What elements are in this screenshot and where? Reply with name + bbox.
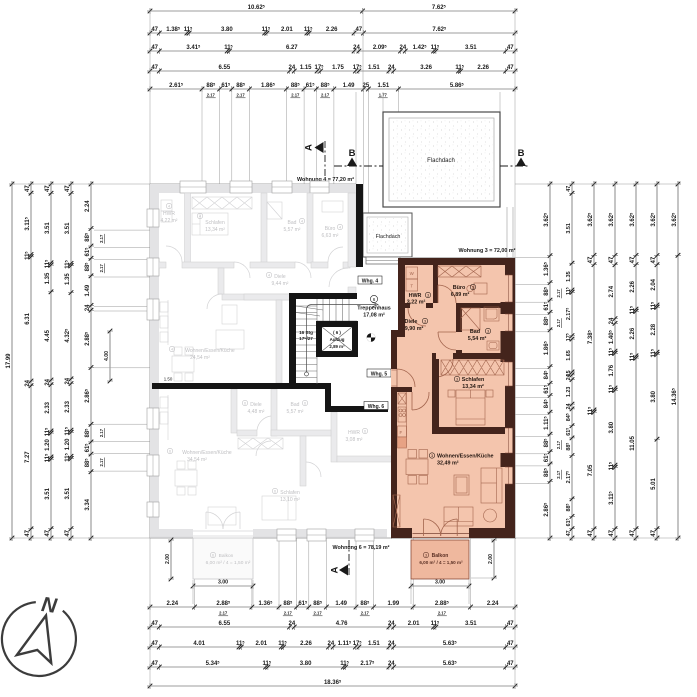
svg-text:2.885: 2.885 [216,600,230,607]
svg-text:3.51: 3.51 [65,487,71,499]
svg-text:Schlafen: Schlafen [280,490,300,496]
svg-text:47: 47 [65,185,71,192]
svg-text:1.405: 1.405 [608,330,615,344]
svg-text:47: 47 [151,27,158,33]
svg-text:3.625: 3.625 [587,213,594,227]
svg-text:3: 3 [431,454,433,458]
svg-text:2.17: 2.17 [99,264,104,273]
svg-text:Wohnen/Essen/Küche: Wohnen/Essen/Küche [185,348,235,354]
svg-text:4: 4 [171,347,173,351]
svg-text:3.80: 3.80 [221,27,233,33]
svg-text:1.51: 1.51 [368,65,380,71]
svg-text:3,08 m²: 3,08 m² [346,437,363,443]
svg-text:Diele: Diele [274,274,286,280]
svg-text:1.23: 1.23 [566,387,572,398]
svg-text:24,54 m²: 24,54 m² [190,355,210,361]
svg-text:47: 47 [588,256,594,263]
svg-text:3.625: 3.625 [543,213,550,227]
svg-text:47: 47 [507,641,514,647]
svg-text:1.49: 1.49 [343,83,355,89]
svg-text:9,90 m²: 9,90 m² [405,326,424,332]
svg-text:47: 47 [588,529,594,536]
svg-text:6.55: 6.55 [219,65,231,71]
svg-text:Diele: Diele [250,402,262,408]
svg-text:47: 47 [151,641,158,647]
svg-text:2.04: 2.04 [651,278,657,290]
svg-text:HWR: HWR [409,293,422,299]
svg-text:2.17: 2.17 [314,611,323,616]
svg-text:2.24: 2.24 [85,200,91,212]
svg-text:1.75: 1.75 [332,65,344,71]
svg-text:3.51: 3.51 [566,223,572,234]
svg-text:F: F [400,430,403,435]
svg-text:2,89 m²: 2,89 m² [329,344,345,349]
svg-text:3.51: 3.51 [45,222,51,234]
svg-text:4,22 m²: 4,22 m² [161,218,178,224]
svg-text:Flachdach: Flachdach [427,158,455,164]
svg-text:2.01: 2.01 [255,641,267,647]
svg-text:7.05: 7.05 [588,464,594,476]
svg-text:47: 47 [507,65,514,71]
svg-text:6: 6 [364,429,366,433]
svg-text:1.51: 1.51 [368,641,380,647]
svg-text:6,63 m²: 6,63 m² [322,233,339,239]
svg-text:1.385: 1.385 [166,26,180,33]
svg-text:24: 24 [566,404,572,410]
svg-text:B: B [518,148,525,159]
svg-text:Bad: Bad [291,402,300,408]
svg-text:2.885: 2.885 [435,600,449,607]
svg-text:2.26: 2.26 [300,641,312,647]
svg-text:Wohnen/Essen/Küche: Wohnen/Essen/Küche [182,450,232,456]
svg-text:3.415: 3.415 [186,44,200,51]
svg-text:2.17: 2.17 [556,289,561,298]
svg-text:1.65: 1.65 [566,350,572,361]
svg-text:Büro: Büro [325,226,336,232]
svg-text:6: 6 [169,449,171,453]
svg-text:17,08 m²: 17,08 m² [363,313,385,319]
svg-text:3.34: 3.34 [85,498,91,510]
svg-text:3: 3 [424,319,426,323]
svg-text:2.17: 2.17 [321,93,330,98]
svg-text:2.095: 2.095 [373,44,387,51]
svg-text:5.01: 5.01 [651,478,657,490]
svg-text:47: 47 [630,529,636,536]
svg-text:3.00: 3.00 [218,580,228,586]
svg-text:2.17: 2.17 [219,611,228,616]
svg-text:3: 3 [456,377,458,381]
svg-text:5.635: 5.635 [443,640,457,647]
svg-text:6,00 m² / 4 = 1,50 m²: 6,00 m² / 4 = 1,50 m² [419,560,463,565]
svg-text:4: 4 [199,214,201,218]
svg-text:3: 3 [472,285,474,289]
svg-text:2.175: 2.175 [360,660,374,667]
svg-text:HWR: HWR [163,211,175,217]
svg-text:1.865: 1.865 [543,341,550,355]
svg-text:3.51: 3.51 [65,222,71,234]
svg-text:18.365: 18.365 [324,679,341,686]
svg-text:3.625: 3.625 [608,213,615,227]
svg-text:47: 47 [355,27,362,33]
svg-text:47: 47 [65,529,71,536]
svg-text:6.27: 6.27 [286,45,298,51]
svg-text:5.635: 5.635 [443,660,457,667]
svg-text:2.00: 2.00 [165,554,171,564]
svg-text:2.28: 2.28 [651,323,657,335]
svg-text:47: 47 [566,186,572,192]
svg-text:3.80: 3.80 [609,421,615,433]
svg-text:3: 3 [427,293,429,297]
svg-text:47: 47 [507,621,514,627]
svg-text:2.17: 2.17 [99,234,104,243]
svg-text:1.49: 1.49 [335,601,347,607]
svg-text:3: 3 [487,329,489,333]
svg-text:2.17: 2.17 [99,428,104,437]
svg-text:6,89 m²: 6,89 m² [451,292,470,298]
svg-text:Whg. 4: Whg. 4 [362,279,379,285]
svg-text:2.00: 2.00 [488,554,494,564]
svg-text:2.17: 2.17 [207,93,216,98]
svg-text:2.26: 2.26 [326,27,338,33]
svg-text:Balkon: Balkon [432,553,449,559]
svg-text:3.26: 3.26 [420,65,432,71]
svg-text:1.50: 1.50 [164,377,173,382]
svg-text:4.325: 4.325 [64,329,71,343]
svg-text:2.17: 2.17 [438,611,447,616]
svg-text:T: T [410,284,413,289]
svg-text:2.01: 2.01 [281,27,293,33]
svg-text:14.365: 14.365 [671,388,678,405]
svg-text:Flachdach: Flachdach [376,234,401,240]
svg-text:Whg. 6: Whg. 6 [368,404,385,410]
svg-text:9,44 m²: 9,44 m² [272,281,289,287]
svg-text:Aufzug: Aufzug [330,337,345,342]
svg-text:2.865: 2.865 [84,389,91,403]
svg-text:4: 4 [268,273,270,277]
svg-text:3.51: 3.51 [465,621,477,627]
svg-text:4.00: 4.00 [104,351,110,361]
svg-text:6: 6 [244,401,246,405]
svg-text:16 Stg: 16 Stg [299,330,313,335]
svg-text:6: 6 [373,297,376,302]
svg-text:B: B [349,148,356,159]
svg-text:47: 47 [151,661,158,667]
svg-text:1.51: 1.51 [378,83,390,89]
svg-text:1.20: 1.20 [65,438,71,450]
svg-text:17⁵/27: 17⁵/27 [299,336,313,341]
svg-text:Bad: Bad [288,220,297,226]
svg-text:1.35: 1.35 [566,271,572,282]
svg-text:47: 47 [609,256,615,263]
svg-text:Treppenhaus: Treppenhaus [357,306,391,312]
svg-text:3.51: 3.51 [45,487,51,499]
svg-text:Büro: Büro [453,285,466,291]
svg-text:1.35: 1.35 [45,272,51,284]
svg-text:2.26: 2.26 [630,280,636,292]
svg-text:2.17: 2.17 [556,318,561,327]
svg-text:17.99: 17.99 [6,353,12,369]
svg-text:47: 47 [507,45,514,51]
svg-text:Schlafen: Schlafen [462,377,484,383]
svg-text:Balkon: Balkon [219,553,234,559]
svg-text:1.365: 1.365 [259,600,273,607]
svg-text:4,48 m²: 4,48 m² [248,409,265,415]
svg-text:2.17: 2.17 [556,440,561,449]
svg-text:Wohnung 3 = 72,00 m²: Wohnung 3 = 72,00 m² [459,248,516,254]
svg-text:47: 47 [609,529,615,536]
svg-text:3.625: 3.625 [671,213,678,227]
svg-text:6: 6 [212,553,214,557]
svg-text:2.33: 2.33 [45,401,51,413]
svg-text:2.17: 2.17 [99,458,104,467]
svg-text:6: 6 [304,401,306,405]
svg-text:4: 4 [168,204,170,208]
svg-text:5.865: 5.865 [450,82,464,89]
svg-text:Diele: Diele [405,319,418,325]
svg-text:Wohnung 6 = 78,19 m²: Wohnung 6 = 78,19 m² [333,545,390,551]
svg-text:2.17: 2.17 [361,611,370,616]
svg-text:5,57 m²: 5,57 m² [284,227,301,233]
svg-text:2.01: 2.01 [408,621,420,627]
svg-text:47: 47 [25,185,31,192]
svg-text:3.625: 3.625 [650,213,657,227]
svg-text:47: 47 [151,621,158,627]
svg-text:6,00 m² / 4 = 1,50 m²: 6,00 m² / 4 = 1,50 m² [206,560,251,566]
svg-text:3.51: 3.51 [465,45,477,51]
svg-text:Wohnen/Essen/Küche: Wohnen/Essen/Küche [437,454,494,460]
svg-text:47: 47 [651,256,657,263]
svg-text:Bad: Bad [470,329,480,335]
svg-text:47: 47 [151,45,158,51]
svg-text:13,10 m²: 13,10 m² [280,497,300,503]
svg-text:47: 47 [151,65,158,71]
svg-text:1.20: 1.20 [45,439,51,451]
svg-text:47: 47 [45,185,51,192]
svg-text:32,49 m²: 32,49 m² [437,461,459,467]
svg-text:1.865: 1.865 [261,82,275,89]
svg-text:2.865: 2.865 [543,503,550,517]
svg-text:HWR: HWR [348,430,360,436]
svg-text:47: 47 [25,529,31,536]
svg-text:2.17: 2.17 [237,93,246,98]
svg-text:2.885: 2.885 [84,332,91,346]
svg-text:2.17: 2.17 [284,611,293,616]
svg-text:1.15: 1.15 [300,65,312,71]
svg-text:2.24: 2.24 [487,601,499,607]
svg-text:7.625: 7.625 [432,26,446,33]
svg-text:A: A [304,144,315,151]
svg-text:2.17: 2.17 [291,93,300,98]
svg-text:7.27: 7.27 [25,451,31,463]
svg-text:5,57 m²: 5,57 m² [287,409,304,415]
svg-text:Whg. 5: Whg. 5 [371,372,388,378]
svg-text:13,34 m²: 13,34 m² [462,384,484,390]
svg-text:7.625: 7.625 [432,4,446,11]
svg-text:47: 47 [45,529,51,536]
svg-text:A: A [330,566,341,573]
svg-text:2.26: 2.26 [630,327,636,339]
svg-text:2.74: 2.74 [609,285,615,297]
svg-text:1.365: 1.365 [543,262,550,276]
svg-text:3.80: 3.80 [300,661,312,667]
svg-text:4.76: 4.76 [336,621,348,627]
svg-text:5,54 m²: 5,54 m² [468,336,487,342]
svg-text:10.625: 10.625 [248,4,265,11]
svg-text:47: 47 [630,256,636,263]
svg-text:1.35: 1.35 [65,273,71,285]
svg-text:3.625: 3.625 [629,213,636,227]
svg-text:1.99: 1.99 [388,601,400,607]
svg-text:11.05: 11.05 [630,435,636,450]
svg-text:3,22 m²: 3,22 m² [407,300,426,306]
svg-text:4: 4 [339,225,341,229]
svg-text:2.33: 2.33 [65,400,71,412]
svg-text:6.31: 6.31 [25,312,31,324]
svg-text:4: 4 [301,219,303,223]
svg-text:2.24: 2.24 [166,601,178,607]
svg-text:47: 47 [566,530,572,536]
svg-text:34,54 m²: 34,54 m² [187,457,207,463]
svg-text:47: 47 [507,661,514,667]
svg-text:7.385: 7.385 [587,330,594,344]
svg-text:2.26: 2.26 [477,65,489,71]
svg-text:3.80: 3.80 [651,390,657,402]
svg-text:4.45: 4.45 [45,329,51,341]
svg-text:6: 6 [274,489,276,493]
svg-text:Schlafen: Schlafen [205,220,225,226]
svg-text:3: 3 [425,553,427,557]
svg-text:1.49: 1.49 [85,284,91,296]
svg-text:1.76: 1.76 [609,364,615,376]
svg-text:( 6 ): ( 6 ) [333,330,341,335]
svg-text:2.17: 2.17 [556,470,561,479]
svg-text:6.55: 6.55 [219,621,231,627]
svg-text:3.00: 3.00 [435,580,445,586]
svg-text:13,34 m²: 13,34 m² [205,227,225,233]
svg-text:4.01: 4.01 [193,641,205,647]
svg-text:47: 47 [651,529,657,536]
